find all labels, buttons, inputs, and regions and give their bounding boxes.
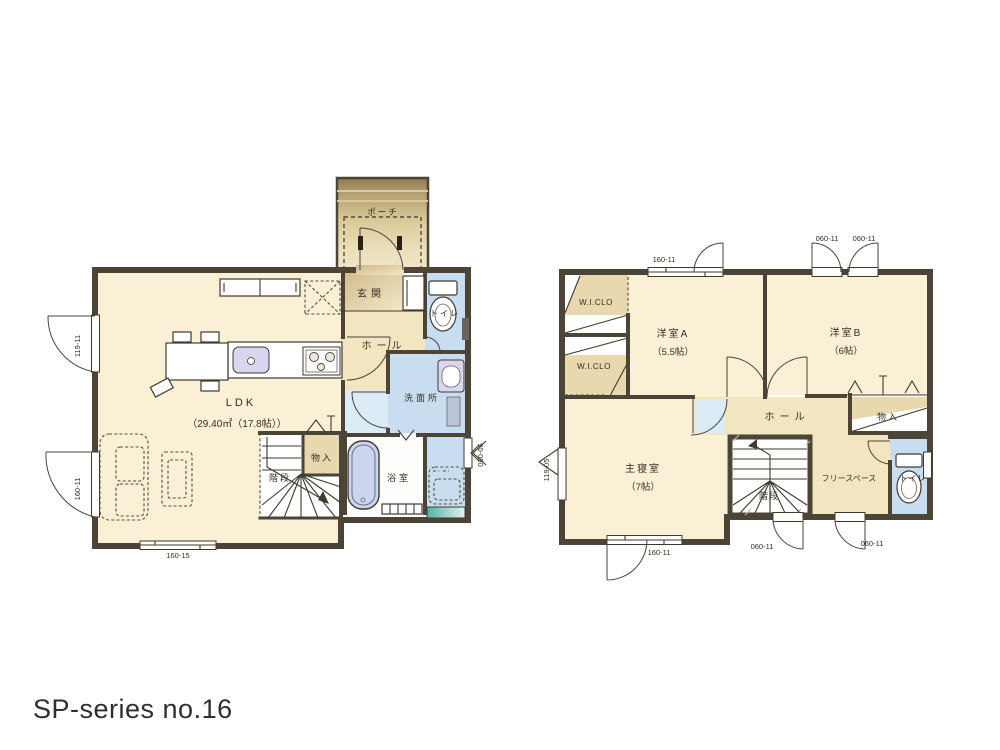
win2-060-11-bottom1-label: 060-11 [751,542,774,551]
entrance-door-gap [356,265,404,275]
room-b-label: 洋室B [830,326,863,339]
porch-area [337,178,428,270]
kitchen-cupboard-icon [220,279,300,296]
toilet1-window [462,318,469,340]
bath-label: 浴室 [387,472,411,483]
win-119-11-label: 119-11 [73,335,82,357]
hall2-label: ホール [765,411,810,423]
window-160-15 [140,541,216,550]
floor-plan-page: ポーチ 玄関 トイレ ホール 洗面所 LDK （29.40㎡（17.8帖）） 物… [0,0,1000,750]
stairs1-label: 階段 [269,472,291,483]
free-space-label: フリースペース [822,474,877,483]
toilet1-label: トイレ [430,309,460,318]
stairs2-label: 階段 [759,490,779,501]
bath-counter-icon [382,504,422,514]
window-060-11-top1 [812,243,842,277]
washbasin-icon [438,360,464,392]
room-a-size-label: （5.5帖） [652,346,694,358]
win-060-06-label: 060-06 [476,443,485,466]
win2-060-11-bottom2-label: 060-11 [861,539,884,548]
win2-060-11-top2-label: 060-11 [853,234,876,243]
bathtub-icon [348,441,379,509]
ldk-label: LDK [226,397,256,409]
porch-label: ポーチ [367,207,399,217]
toilet2-label: トイレ [900,474,927,483]
kitchen-counter-icon [228,342,342,378]
second-floor-plan: W.I.CLO W.I.CLO 洋室A （5.5帖） 洋室B （6帖） 主寝室 … [539,234,932,580]
room-b-size-label: （6帖） [829,345,863,357]
floor-plan-canvas: ポーチ 玄関 トイレ ホール 洗面所 LDK （29.40㎡（17.8帖）） 物… [0,0,1000,750]
win2-160-11-bottom-label: 160-11 [648,548,671,557]
plan-title: SP-series no.16 [33,694,233,725]
win-160-15-label: 160-15 [166,551,189,560]
hall2-threshold [695,399,725,433]
hall1-label: ホール [362,340,407,352]
ldk-size-label: （29.40㎡（17.8帖）） [187,417,287,430]
win-160-11-f1-label: 160-11 [73,478,82,501]
win2-160-11-top-label: 160-11 [653,255,676,264]
shoe-cabinet-icon [403,276,424,310]
entrance-label: 玄関 [357,287,385,300]
teal-window-f1 [427,507,465,518]
win2-060-11-top1-label: 060-11 [816,234,839,243]
window-060-11-top2 [848,243,878,277]
window-160-11-f2-bottom [607,536,682,581]
master-size-label: （7帖） [626,481,660,493]
toilet1-icon [429,281,457,331]
room-a-floor [628,275,765,397]
washroom-label: 洗面所 [404,392,440,403]
first-floor-plan: ポーチ 玄関 トイレ ホール 洗面所 LDK （29.40㎡（17.8帖）） 物… [46,178,486,560]
storage1-label: 物入 [311,452,333,463]
storage2-label: 物入 [877,411,899,422]
wic-bottom-label: W.I.CLO [577,362,611,371]
win2-119-05-label: 119-05 [542,459,551,482]
wic-top-label: W.I.CLO [579,298,613,307]
master-label: 主寝室 [625,462,661,475]
window-060-11-bottom1 [773,513,803,550]
room-a-label: 洋室A [657,327,690,340]
wash-cabinet-icon [447,397,460,426]
